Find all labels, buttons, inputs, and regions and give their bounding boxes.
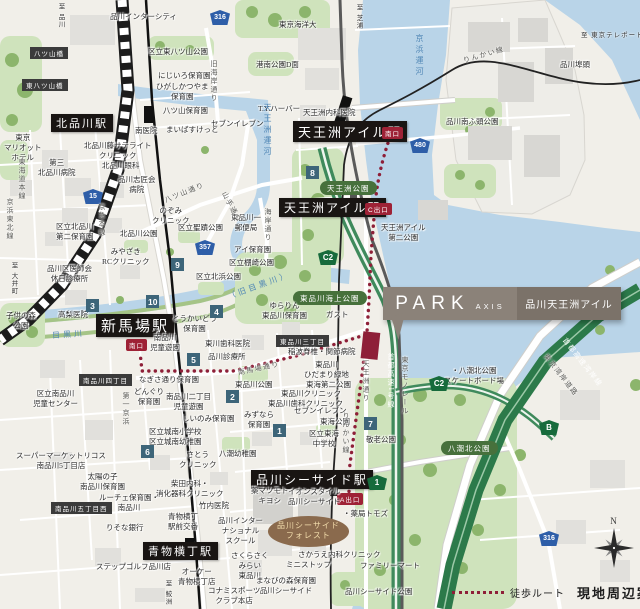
water-labels-2: 目黒川 — [52, 328, 86, 341]
brand-park-logo: PARK — [395, 294, 469, 313]
facilities-2: にじいろ保育園 — [158, 71, 211, 81]
exits-2: 南口 — [126, 339, 147, 351]
facilities-28: 区立棚崎公園 — [229, 258, 274, 268]
road-labels-13: 京急本線 — [97, 203, 107, 237]
facilities-36: 稲波脊椎・関節病院 — [288, 347, 356, 357]
legend-walk-route-label: 徒歩ルート — [510, 585, 565, 600]
walk-route-dotted-line-icon — [452, 591, 504, 594]
road-labels-12: りんかい線 — [341, 412, 351, 455]
area-labels-1: 東八ツ山橋 — [22, 79, 68, 91]
facilities-26: 品川区医師会 休日診療所 — [47, 264, 92, 284]
badges-2: 3 — [86, 299, 99, 312]
facilities-10: 港南公園D面 — [256, 60, 299, 70]
facilities-74: さかうえ内科クリニック — [298, 550, 381, 560]
facilities-27: 区立北浜公園 — [196, 272, 241, 282]
facilities-44: なぎさ通り保育園 — [139, 375, 199, 385]
road-labels-2: 山手通り — [219, 190, 244, 225]
facilities-0: 品川インターシティ — [110, 12, 177, 22]
shields-7: B — [539, 420, 559, 435]
facilities-39: 東品川公園 — [235, 380, 273, 390]
badges-6: 7 — [364, 417, 377, 430]
facilities-33: 南品川 児童遊園 — [150, 333, 180, 353]
compass: N — [592, 516, 636, 575]
facilities-69: 竹内医院 — [199, 501, 229, 511]
facilities-51: ガスト — [326, 310, 349, 320]
facilities-20: 区立聖蹟公園 — [178, 223, 223, 233]
facilities-16: 第三 北品川病院 — [38, 158, 76, 178]
badges-0: 1 — [273, 424, 286, 437]
facilities-29: 高梨医院 — [58, 310, 88, 320]
shields-3: 480 — [410, 138, 430, 153]
oval-labels-0: 品川シーサイド フォレスト — [268, 516, 349, 547]
shields-5: C2 — [318, 250, 338, 265]
road-labels-15: 京浜東北線 — [5, 198, 15, 241]
facilities-77: コナミスポーツ クラブ本店 — [208, 586, 260, 606]
facilities-3: ひがしかつやま 保育園 — [156, 82, 209, 102]
facilities-59: スーパーマーケットリコス 南品川5丁目店 — [16, 451, 106, 471]
road-labels-14: 東海道本線 — [17, 158, 27, 201]
park-labels-2: 八潮北公園 — [441, 441, 498, 455]
facilities-45: どんぐり 保育園 — [134, 387, 164, 407]
water-labels-1: 京浜運河 — [414, 34, 425, 78]
facilities-34: 東川歯科医院 — [205, 339, 250, 349]
map-legend: 徒歩ルート 現地周辺案内図 — [452, 583, 640, 602]
badges-5: 6 — [141, 445, 154, 458]
facilities-63: 青物横丁 駅前交番 — [168, 512, 198, 532]
compass-rose-icon — [592, 526, 636, 570]
facilities-9: 東京海洋大 — [279, 20, 317, 30]
stations-5: 青物横丁駅 — [143, 542, 218, 560]
badges-8: 9 — [171, 258, 184, 271]
facilities-76: まなびの森保育園 品川シーサイド — [256, 576, 316, 596]
badges-3: 4 — [210, 305, 223, 318]
facilities-66: さとう クリニック — [179, 450, 217, 470]
facilities-75: ミニストップ — [286, 560, 331, 570]
road-labels-8: 東京モノレール — [400, 356, 410, 416]
compass-north-label: N — [592, 516, 636, 526]
directions-1: 至 芝浦 — [353, 4, 363, 29]
facilities-68: 柴田内科・ 消化器科クリニック — [156, 479, 224, 499]
facilities-17: 北品川眼科 — [102, 161, 140, 171]
property-name: 品川天王洲アイル — [517, 287, 621, 320]
road-labels-4: 南馬場通り — [237, 359, 281, 378]
facilities-13: 天王洲内科医院 — [303, 108, 356, 118]
facilities-25: みやざき RCクリニック — [102, 247, 150, 267]
facilities-18: 品川志匠会 病院 — [118, 175, 156, 195]
facilities-31: ゆらりん 東品川保育園 — [262, 301, 307, 321]
park-labels-0: 天王洲公園 — [320, 181, 377, 195]
shields-2: 357 — [195, 240, 215, 255]
facilities-5: 南医院 — [135, 126, 158, 136]
facilities-67: 八潮幼稚園 — [219, 449, 257, 459]
facilities-64: ステップゴルフ品川店 — [96, 562, 171, 572]
facilities-73: イオンスタイル 品川シーサイド — [288, 487, 340, 507]
directions-3: 至 大井町 — [8, 262, 18, 295]
map-title: 現地周辺案内図 — [577, 583, 640, 602]
facilities-22: アイ保育園 — [234, 245, 271, 255]
facilities-70: 品川インター ナショナル スクール — [218, 516, 263, 545]
property-callout: PARK AXIS 品川天王洲アイル — [383, 287, 621, 320]
facilities-54: ・薬局トモズ — [343, 509, 388, 519]
facilities-7: セブンイレブン — [211, 119, 264, 129]
facilities-50: 天王洲アイル 第二公園 — [381, 223, 426, 243]
area-labels-3: 東品川三丁目 — [276, 335, 329, 347]
stations-0: 北品川駅 — [51, 114, 113, 132]
facilities-42: セブンイレブン — [294, 406, 347, 416]
badges-1: 2 — [226, 390, 239, 403]
facilities-56: 品川シーサイド公園 — [345, 587, 412, 597]
facilities-14: 品川埠頭 — [560, 60, 590, 70]
area-labels-2: 南品川四丁目 — [79, 374, 132, 386]
road-labels-3: 海岸通り — [263, 208, 273, 242]
water-labels-0: 天王洲運河 — [262, 103, 273, 158]
brand-axis-logo: AXIS — [476, 302, 505, 311]
road-labels-0: 旧海岸通り — [209, 60, 219, 103]
facilities-37: 東品川 ひだまり緑地 — [304, 360, 349, 380]
directions-0: 至 品川 — [55, 3, 65, 28]
facilities-52: ・八潮北公園 スケートボード場 — [444, 366, 504, 386]
directions-4: 至 鮫洲 — [162, 580, 172, 605]
badges-7: 8 — [306, 166, 319, 179]
facilities-62: りそな銀行 — [106, 523, 144, 533]
road-labels-5: 第一京浜 — [121, 392, 131, 426]
facilities-65: オーケー 青物横丁店 — [178, 567, 216, 587]
road-labels-1: 八ツ山通り — [163, 180, 206, 205]
facilities-61: ルーチェ保育園・ 南品川 — [99, 493, 159, 513]
badges-9: 10 — [146, 295, 159, 308]
exits-1: C出口 — [365, 203, 392, 215]
facilities-11: 北品川藤サテライト クリニック — [84, 141, 152, 161]
area-guide-map: 北品川駅天王洲アイル駅天王洲アイル駅新馬場駅品川シーサイド駅青物横丁駅南口C出口… — [0, 0, 640, 609]
facilities-47: 区立南品川 児童センター — [33, 389, 78, 409]
exits-0: 南口 — [382, 127, 403, 139]
facilities-53: 敬老公園 — [366, 435, 396, 445]
directions-2: 至 東京テレポート — [581, 29, 640, 39]
facilities-46: 南品川二丁目 児童遊園 — [166, 392, 211, 412]
shields-0: 316 — [210, 10, 230, 25]
facilities-48: しいのみ保育園 — [182, 414, 235, 424]
facilities-40: 東品川クリニック — [281, 389, 341, 399]
facilities-58: 区立東海 中学校 — [309, 429, 339, 449]
exits-3: A出口 — [337, 493, 363, 505]
badges-4: 5 — [187, 353, 200, 366]
area-labels-0: 八ツ山橋 — [30, 47, 68, 59]
facilities-30: 子供の森 公園 — [6, 311, 36, 331]
facilities-1: 区立東八ツ山公園 — [148, 47, 208, 57]
shields-1: 15 — [83, 189, 103, 204]
facilities-23: 区立北品川 第二保育園 — [56, 222, 94, 242]
facilities-24: 北品川公園 — [120, 229, 158, 239]
facilities-55: ファミリーマート — [360, 561, 420, 571]
facilities-43: みずなら 保育園 — [244, 410, 274, 430]
facilities-60: 太陽の子 南品川保育園 — [80, 472, 125, 492]
facilities-15: 品川南ふ頭公園 — [446, 117, 499, 127]
road-labels-11: りんかい線 — [462, 44, 506, 65]
shields-4: 316 — [539, 531, 559, 546]
facilities-49: 区立城南小学校 区立城南幼稚園 — [149, 427, 202, 447]
facilities-4: 八ツ山保育園 — [163, 106, 208, 116]
facilities-35: 品川診療所 — [208, 352, 246, 362]
road-labels-6: 天王洲通り — [361, 360, 371, 403]
facilities-72: 薬マツモト キヨシ — [251, 486, 289, 506]
road-labels-7: 首都高速1号線 — [386, 353, 396, 409]
